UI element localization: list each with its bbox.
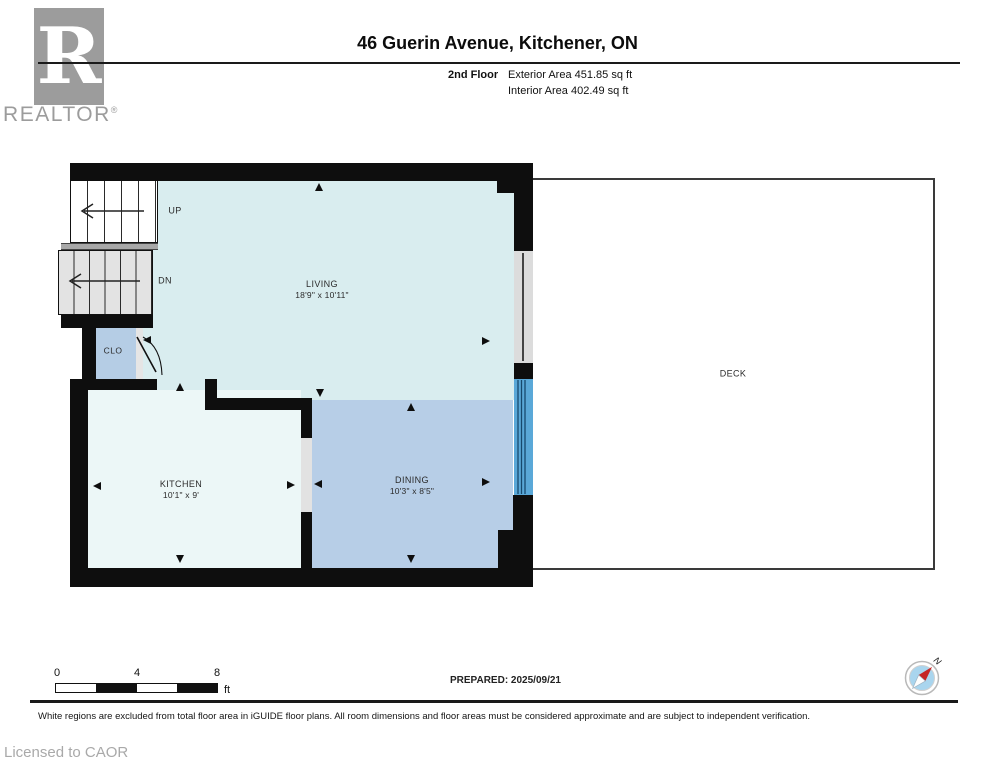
- wall-kitchen-living: [205, 398, 312, 410]
- measure-arrow-closet-door: [143, 336, 151, 344]
- closet-label: CLO: [104, 346, 123, 357]
- scale-bar: [55, 683, 218, 693]
- compass-needle-north: [919, 664, 936, 681]
- living-dims: 18'9" x 10'11": [295, 290, 349, 301]
- registered-mark: ®: [111, 105, 119, 115]
- compass-north-label: N: [932, 655, 944, 667]
- kitchen-name: KITCHEN: [160, 479, 202, 490]
- stairs-up-label: UP: [168, 206, 181, 217]
- floor-label: 2nd Floor: [448, 69, 498, 81]
- disclaimer-text: White regions are excluded from total fl…: [38, 711, 938, 722]
- prepared-date: PREPARED: 2025/09/21: [450, 675, 561, 686]
- realtor-logo-letter: R: [37, 18, 102, 96]
- compass-icon: N: [898, 650, 950, 702]
- footer-divider: [30, 700, 958, 703]
- sliding-door-dining: [514, 379, 533, 495]
- scale-tick-4: 4: [134, 667, 140, 679]
- license-text: Licensed to CAOR: [4, 744, 128, 761]
- living-label: LIVING 18'9" x 10'11": [295, 279, 349, 301]
- measure-arrow-living-window: [482, 337, 490, 345]
- measure-arrow-passthrough-right: [314, 480, 322, 488]
- wall-below-closet: [70, 379, 157, 390]
- exterior-area: Exterior Area 451.85 sq ft: [508, 69, 632, 81]
- living-name: LIVING: [295, 279, 349, 290]
- wall-right-upper: [514, 193, 533, 251]
- stairs-dn-label: DN: [158, 276, 172, 287]
- closet-door-jamb: [136, 328, 143, 379]
- scale-tick-0: 0: [54, 667, 60, 679]
- interior-area: Interior Area 402.49 sq ft: [508, 85, 628, 97]
- wall-top: [70, 163, 533, 181]
- scale-unit: ft: [224, 684, 230, 696]
- wall-kitchen-dining-lower: [301, 512, 312, 568]
- page-title: 46 Guerin Avenue, Kitchener, ON: [0, 33, 995, 54]
- pass-through-opening: [301, 438, 312, 512]
- scale-segment: [137, 684, 177, 692]
- dining-name: DINING: [390, 475, 434, 486]
- scale-segment: [56, 684, 96, 692]
- floor-plan-page: R REALTOR® 46 Guerin Avenue, Kitchener, …: [0, 0, 995, 768]
- scale-segment: [177, 684, 217, 692]
- stairs-down: [58, 250, 153, 315]
- measure-arrow-sliding-door: [482, 478, 490, 486]
- scale-tick-8: 8: [214, 667, 220, 679]
- wall-kitchen-dining-upper: [301, 398, 312, 438]
- compass-face: [910, 666, 935, 691]
- wall-bottom: [70, 568, 533, 587]
- realtor-wordmark: REALTOR®: [2, 103, 120, 127]
- stairs-landing-divider: [61, 243, 158, 250]
- dining-dims: 10'3" x 8'5": [390, 486, 434, 497]
- measure-arrow-living-top: [315, 183, 323, 191]
- scale-segment: [96, 684, 136, 692]
- measure-arrow-passthrough-left: [287, 481, 295, 489]
- compass-ring: [906, 662, 939, 695]
- compass-needle: N: [909, 654, 944, 691]
- dining-label: DINING 10'3" x 8'5": [390, 475, 434, 497]
- wall-right-mid: [514, 363, 533, 379]
- realtor-logo: R: [34, 8, 104, 105]
- compass-needle-south: [909, 675, 925, 691]
- measure-arrow-living-bottom: [316, 389, 324, 397]
- wall-below-stairs: [61, 315, 153, 328]
- measure-arrow-kitchen-left: [93, 482, 101, 490]
- kitchen-label: KITCHEN 10'1" x 9': [160, 479, 202, 501]
- deck-label: DECK: [720, 369, 747, 380]
- wall-left: [70, 379, 88, 587]
- measure-arrow-dining-top: [407, 403, 415, 411]
- kitchen-dims: 10'1" x 9': [160, 490, 202, 501]
- header-divider: [38, 62, 960, 64]
- measure-arrow-kitchen-bottom: [176, 555, 184, 563]
- window-living: [514, 251, 533, 363]
- stairs-up: [70, 180, 158, 243]
- measure-arrow-dining-bottom: [407, 555, 415, 563]
- measure-arrow-kitchen-top: [176, 383, 184, 391]
- wall-corner-top-right: [497, 163, 533, 193]
